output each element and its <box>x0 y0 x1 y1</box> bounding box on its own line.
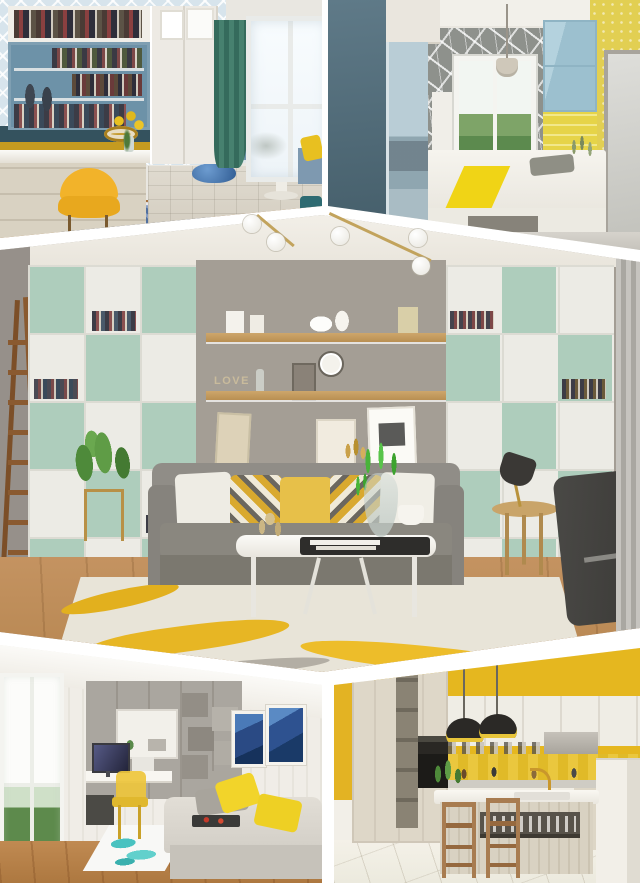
bar-stool <box>486 798 520 878</box>
teal-cushion <box>300 196 322 212</box>
white-cabinet-column <box>596 758 640 883</box>
black-tray <box>300 537 430 555</box>
sink <box>514 792 570 800</box>
collage-canvas: LOVE <box>0 0 640 883</box>
dark-cabinet <box>86 795 114 825</box>
island-plant <box>426 752 468 794</box>
book-row <box>72 74 142 96</box>
side-table-legs <box>500 513 550 575</box>
book-row <box>34 379 78 399</box>
mint-cabinet-door <box>30 267 84 333</box>
picture-frame <box>160 10 184 40</box>
coffee-table-legs <box>248 555 424 617</box>
blue-artwork <box>232 711 266 767</box>
blue-artwork <box>266 705 306 765</box>
book-row <box>52 48 142 68</box>
printer <box>132 757 154 771</box>
open-cubby-column <box>396 668 418 828</box>
photo-bedroom-platform <box>328 0 640 252</box>
glossy-door <box>604 50 640 244</box>
slate-wardrobe-panel <box>328 0 386 252</box>
horse-bookends <box>20 70 58 122</box>
plant-sprig <box>566 134 596 162</box>
mint-cabinet-door <box>446 335 500 401</box>
yellow-side-wall <box>334 660 354 810</box>
shelf-decor-items <box>216 305 438 333</box>
garden-window <box>0 673 64 865</box>
mint-cabinet-door <box>502 267 556 333</box>
picture-frame <box>186 8 214 40</box>
photo-study-daybed <box>0 645 322 883</box>
mint-cabinet-door <box>142 267 196 333</box>
chair-legs <box>114 805 146 839</box>
love-letters: LOVE <box>214 375 250 387</box>
pendant-cord <box>506 4 508 60</box>
book-row <box>14 10 142 38</box>
book-row <box>450 311 494 329</box>
bar-stool <box>442 802 476 878</box>
deer-figurine <box>252 507 286 541</box>
snack-tray <box>192 815 240 827</box>
white-cup <box>398 505 424 525</box>
range-hood <box>544 732 598 754</box>
white-cushion <box>175 472 234 531</box>
green-curtain <box>214 20 248 168</box>
wood-shelf <box>206 333 446 342</box>
striped-curtain <box>616 235 640 635</box>
pedestal-table-foot <box>264 191 298 200</box>
mint-cabinet-door <box>142 403 196 469</box>
mirror-panel <box>386 42 428 252</box>
pendant-cord <box>496 640 498 716</box>
photo-living-room: LOVE <box>0 205 640 685</box>
light-blue-cabinet <box>543 20 597 112</box>
green-leaves <box>356 435 406 487</box>
wood-shelf <box>206 391 446 400</box>
yellow-cushion <box>280 477 332 529</box>
mint-cabinet-door <box>86 335 140 401</box>
plant-stand <box>84 489 124 541</box>
photo-study-nook <box>0 0 322 245</box>
wall-shelf <box>432 92 452 154</box>
photo-yellow-kitchen <box>334 640 640 883</box>
leaning-artwork <box>215 412 252 470</box>
monitor-stand <box>106 771 110 777</box>
yellow-flowers <box>110 110 146 152</box>
wall-clock <box>318 351 344 377</box>
monitor <box>92 743 130 773</box>
garden-window <box>454 56 536 162</box>
daybed-base <box>170 845 322 879</box>
book-row <box>562 379 606 399</box>
book-row <box>92 311 136 331</box>
cream-cabinet <box>386 0 440 44</box>
